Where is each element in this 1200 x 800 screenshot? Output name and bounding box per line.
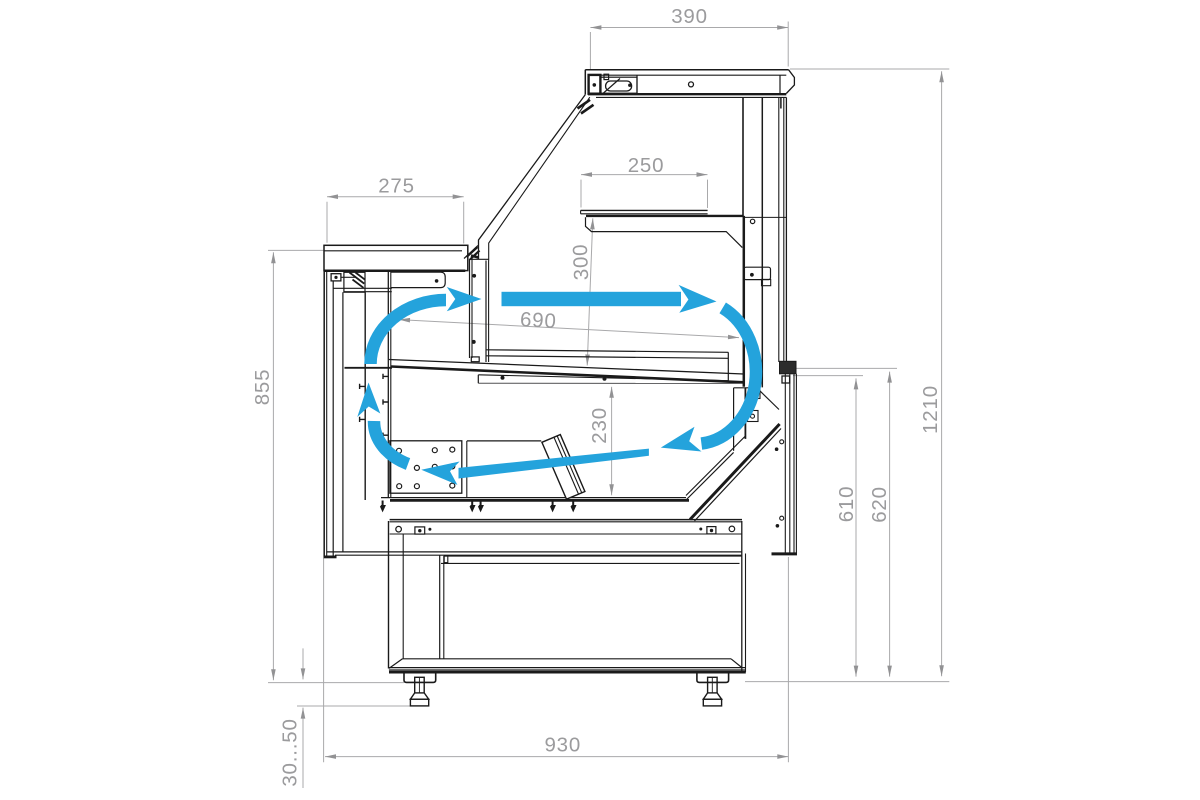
svg-text:390: 390 [671,5,708,28]
svg-text:30...50: 30...50 [279,718,302,786]
svg-text:230: 230 [588,407,611,444]
svg-text:610: 610 [835,486,858,523]
svg-text:855: 855 [251,369,274,406]
svg-text:620: 620 [868,486,891,523]
svg-text:300: 300 [569,243,593,281]
svg-text:250: 250 [628,154,665,177]
svg-text:930: 930 [544,734,581,757]
svg-text:1210: 1210 [919,385,942,434]
svg-text:690: 690 [519,308,557,333]
svg-text:275: 275 [378,175,415,198]
